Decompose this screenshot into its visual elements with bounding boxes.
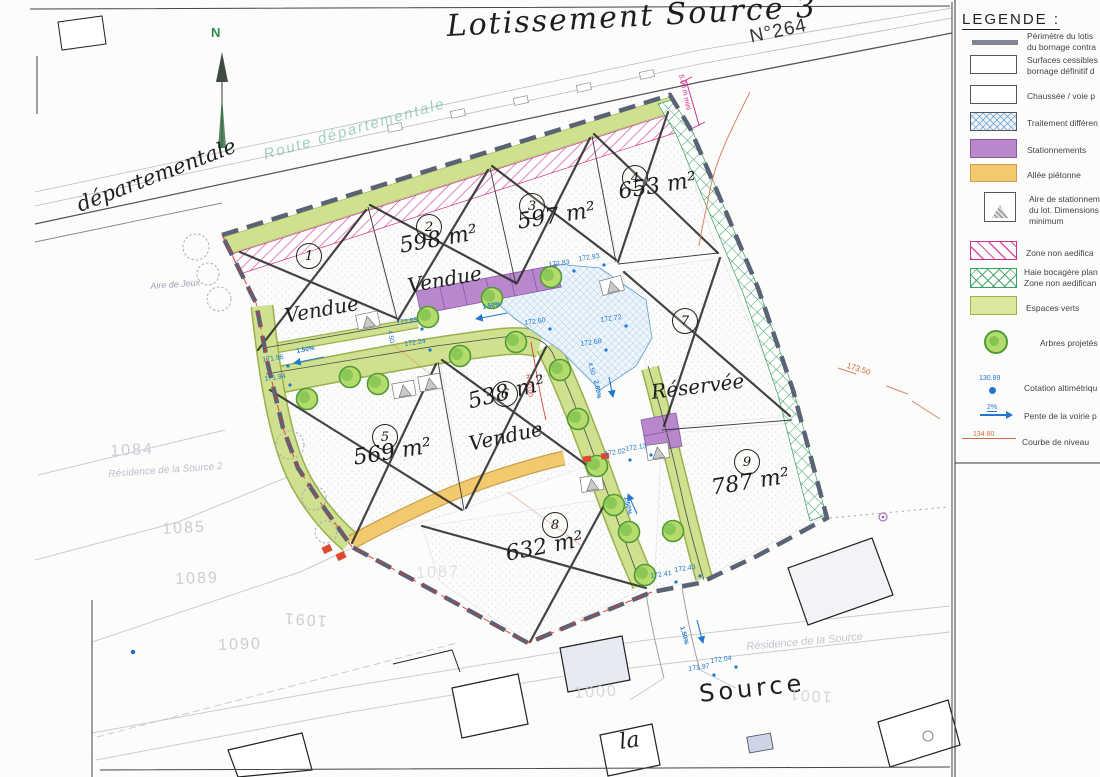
north-arrow-icon bbox=[216, 52, 228, 148]
legend-label: Allée piétonne bbox=[1027, 170, 1081, 181]
legend-slope-value: 2% bbox=[987, 404, 997, 412]
legend-label: Haie bocagère plan bbox=[1024, 267, 1098, 278]
width-dim-label: 4.50 bbox=[386, 330, 395, 344]
parcel-1090: 1090 bbox=[218, 636, 262, 654]
legend-contour-line-icon bbox=[962, 438, 1016, 439]
legend-label: Arbres projetés bbox=[1040, 338, 1098, 349]
street-la-label: la bbox=[618, 729, 641, 754]
legend-label: Surfaces cessibles bbox=[1027, 55, 1098, 66]
parcel-1091: 1091 bbox=[283, 609, 328, 628]
legend-swatch-chaussee bbox=[970, 85, 1017, 104]
parcel-1001: 1001 bbox=[788, 685, 833, 704]
lot-1-number: 1 bbox=[296, 243, 322, 269]
legend-label: du lot. Dimensions bbox=[1029, 205, 1099, 216]
legend-label: Traitement différen bbox=[1027, 118, 1098, 129]
parcel-1000: 1000 bbox=[574, 684, 618, 702]
subdivision-plan-sheet: Lotissement Source 3 N°264 départemental… bbox=[0, 0, 1100, 777]
legend-label: bornage définitif d bbox=[1027, 66, 1095, 77]
legend-label: Chaussée / voie p bbox=[1027, 91, 1095, 102]
legend-heading: LEGENDE : bbox=[962, 12, 1060, 30]
legend-swatch-stationnements bbox=[970, 139, 1017, 158]
legend-label: Cotation altimétriqu bbox=[1024, 383, 1097, 394]
hatched-triangle-icon bbox=[992, 205, 1008, 218]
parcel-1085: 1085 bbox=[162, 520, 206, 538]
legend-tree-icon bbox=[984, 330, 1008, 354]
legend-label: du bornage contra bbox=[1027, 42, 1096, 53]
legend-swatch-aire-stationnement bbox=[984, 192, 1016, 222]
legend-label: Aire de stationnem bbox=[1029, 194, 1100, 205]
parcel-1084: 1084 bbox=[110, 442, 154, 460]
legend-label: Stationnements bbox=[1027, 145, 1086, 156]
parcel-1089: 1089 bbox=[175, 570, 219, 588]
legend-label: Zone non aedifica bbox=[1026, 248, 1094, 259]
legend-label: Espaces verts bbox=[1026, 303, 1079, 314]
legend-contour-value: 134.80 bbox=[971, 431, 996, 438]
legend-swatch-haie bbox=[970, 268, 1017, 288]
legend-slope-arrow-icon bbox=[980, 414, 1006, 416]
legend-swatch-allee bbox=[970, 164, 1017, 182]
legend-label: minimum bbox=[1029, 216, 1063, 227]
legend-swatch-espaces-verts bbox=[970, 296, 1017, 315]
site-plan-drawing bbox=[0, 0, 1100, 777]
legend-swatch-perimeter bbox=[972, 40, 1018, 45]
legend-label: Courbe de niveau bbox=[1022, 437, 1089, 448]
radius-label: R 10.00 bbox=[524, 374, 533, 397]
legend-elevation-dot-icon bbox=[989, 387, 996, 394]
legend-swatch-traitement bbox=[970, 112, 1017, 131]
north-label: N bbox=[211, 26, 220, 39]
legend-swatch-zone-non-aedificandi bbox=[970, 241, 1017, 260]
lot-7-number: 7 bbox=[672, 308, 698, 334]
legend-swatch-surfaces bbox=[970, 55, 1017, 74]
legend-label: Pente de la voirie p bbox=[1024, 411, 1097, 422]
legend-slope-arrowhead-icon bbox=[1006, 411, 1013, 419]
parcel-1087: 1087 bbox=[416, 564, 460, 582]
legend-elevation-value: 130.89 bbox=[979, 375, 1000, 382]
legend-label: Zone non aedifican bbox=[1024, 278, 1096, 289]
legend-label: Périmètre du lotis bbox=[1027, 31, 1093, 42]
